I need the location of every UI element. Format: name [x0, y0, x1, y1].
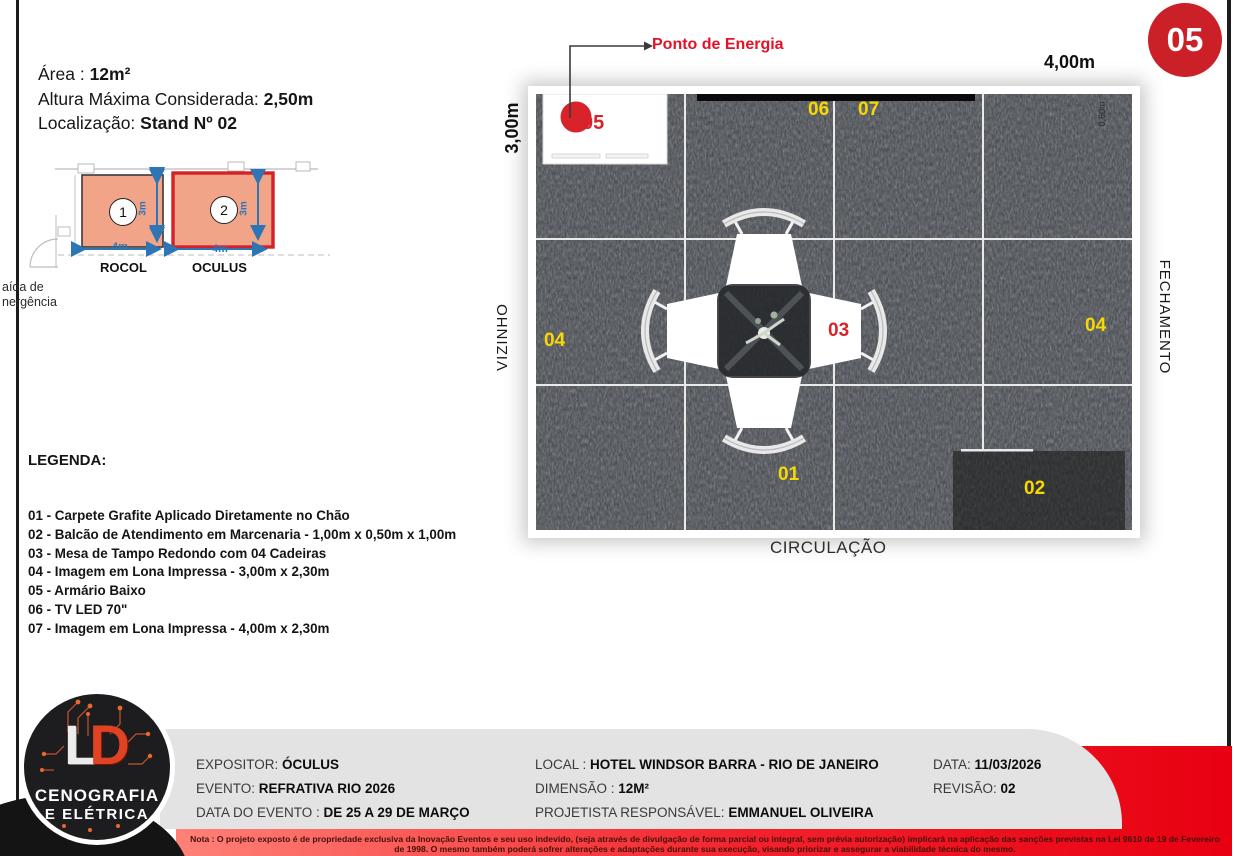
stand-1-number: 1	[109, 198, 137, 226]
legend-item: 02 - Balcão de Atendimento em Marcenaria…	[28, 526, 456, 545]
technical-drawing-sheet: 05 Área : 12m² Altura Máxima Considerada…	[0, 0, 1234, 856]
legend: LEGENDA: 01 - Carpete Grafite Aplicado D…	[28, 452, 456, 639]
logo-text-line2: E ELÉTRICA	[24, 806, 170, 823]
event-line: EVENTO: REFRATIVA RIO 2026	[196, 777, 470, 801]
height-line: Altura Máxima Considerada: 2,50m	[38, 87, 313, 112]
stand-2-name: OCULUS	[192, 260, 247, 275]
sheet-border-right	[1227, 0, 1231, 856]
dimension-line: DIMENSÃO : 12M²	[535, 777, 879, 801]
footer-column-revision: DATA: 11/03/2026 REVISÃO: 02	[933, 753, 1041, 801]
legend-item: 01 - Carpete Grafite Aplicado Diretament…	[28, 507, 456, 526]
date-line: DATA: 11/03/2026	[933, 753, 1041, 777]
footer-column-exhibitor: EXPOSITOR: ÓCULUS EVENTO: REFRATIVA RIO …	[196, 753, 470, 825]
sheet-number-badge: 05	[1148, 3, 1222, 77]
stand-2-width-dim: 4m	[212, 243, 228, 255]
revision-line: REVISÃO: 02	[933, 777, 1041, 801]
floor-plan-drawing	[536, 94, 1132, 530]
floor-plan: 05 06 07 03 04 04 01 02	[528, 86, 1140, 538]
company-logo: LD CENOGRAFIA E ELÉTRICA	[19, 689, 175, 845]
closure-side-label: FECHAMENTO	[1153, 257, 1173, 377]
stand-1-width-dim: 4m	[112, 241, 128, 253]
legend-title: LEGENDA:	[28, 452, 456, 469]
height-label: Altura Máxima Considerada:	[38, 89, 259, 109]
stand-info-block: Área : 12m² Altura Máxima Considerada: 2…	[38, 62, 313, 136]
marker-03: 03	[828, 320, 849, 342]
footer-column-location: LOCAL : HOTEL WINDSOR BARRA - RIO DE JAN…	[535, 753, 879, 825]
area-label: Área :	[38, 64, 85, 84]
stand-1-name: ROCOL	[100, 260, 147, 275]
marker-07: 07	[858, 99, 879, 121]
logo-initials: LD	[24, 716, 170, 774]
legend-item: 07 - Imagem em Lona Impressa - 4,00m x 2…	[28, 620, 456, 639]
site-location-plan: 1 2 3m 3m 4m 4m ROCOL OCULUS aída de ner…	[0, 155, 340, 330]
neighbor-side-label: VIZINHO	[494, 287, 514, 387]
emergency-exit-label: aída de nergência	[2, 280, 57, 310]
exhibitor-line: EXPOSITOR: ÓCULUS	[196, 753, 470, 777]
area-value: 12m²	[90, 64, 131, 84]
location-line: Localização: Stand Nº 02	[38, 111, 313, 136]
stand-2-number: 2	[210, 196, 238, 224]
sheet-border-left	[16, 0, 19, 856]
copyright-disclaimer: Nota : O projeto exposto é de propriedad…	[190, 834, 1220, 854]
sheet-number: 05	[1167, 21, 1204, 59]
legend-item: 04 - Imagem em Lona Impressa - 3,00m x 2…	[28, 563, 456, 582]
stand-2-height-dim: 3m	[239, 201, 250, 215]
marker-04-left: 04	[544, 330, 565, 352]
plan-width-dimension: 4,00m	[1044, 52, 1095, 73]
area-line: Área : 12m²	[38, 62, 313, 87]
circulation-side-label: CIRCULAÇÃO	[770, 538, 886, 558]
designer-line: PROJETISTA RESPONSÁVEL: EMMANUEL OLIVEIR…	[535, 801, 879, 825]
logo-text-line1: CENOGRAFIA	[24, 786, 170, 806]
energy-leader-arrow	[560, 38, 660, 128]
height-value: 2,50m	[264, 89, 314, 109]
energy-point-label: Ponto de Energia	[652, 36, 784, 54]
tv-led-bar	[697, 94, 975, 101]
location-value: Stand Nº 02	[140, 113, 237, 133]
event-date-line: DATA DO EVENTO : DE 25 A 29 DE MARÇO	[196, 801, 470, 825]
marker-02: 02	[1024, 478, 1045, 500]
legend-item: 03 - Mesa de Tampo Redondo com 04 Cadeir…	[28, 545, 456, 564]
location-label: Localização:	[38, 113, 135, 133]
stand-1-height-dim: 3m	[138, 201, 149, 215]
plan-height-dimension: 3,00m	[502, 88, 522, 168]
marker-01: 01	[778, 464, 799, 486]
marker-04-right: 04	[1085, 315, 1106, 337]
marker-06: 06	[808, 99, 829, 121]
legend-item: 06 - TV LED 70"	[28, 601, 456, 620]
legend-item: 05 - Armário Baixo	[28, 582, 456, 601]
plan-small-dimension: 0,60m	[1097, 84, 1111, 144]
carpet-area: 05 06 07 03 04 04 01 02	[536, 94, 1132, 530]
location-line: LOCAL : HOTEL WINDSOR BARRA - RIO DE JAN…	[535, 753, 879, 777]
